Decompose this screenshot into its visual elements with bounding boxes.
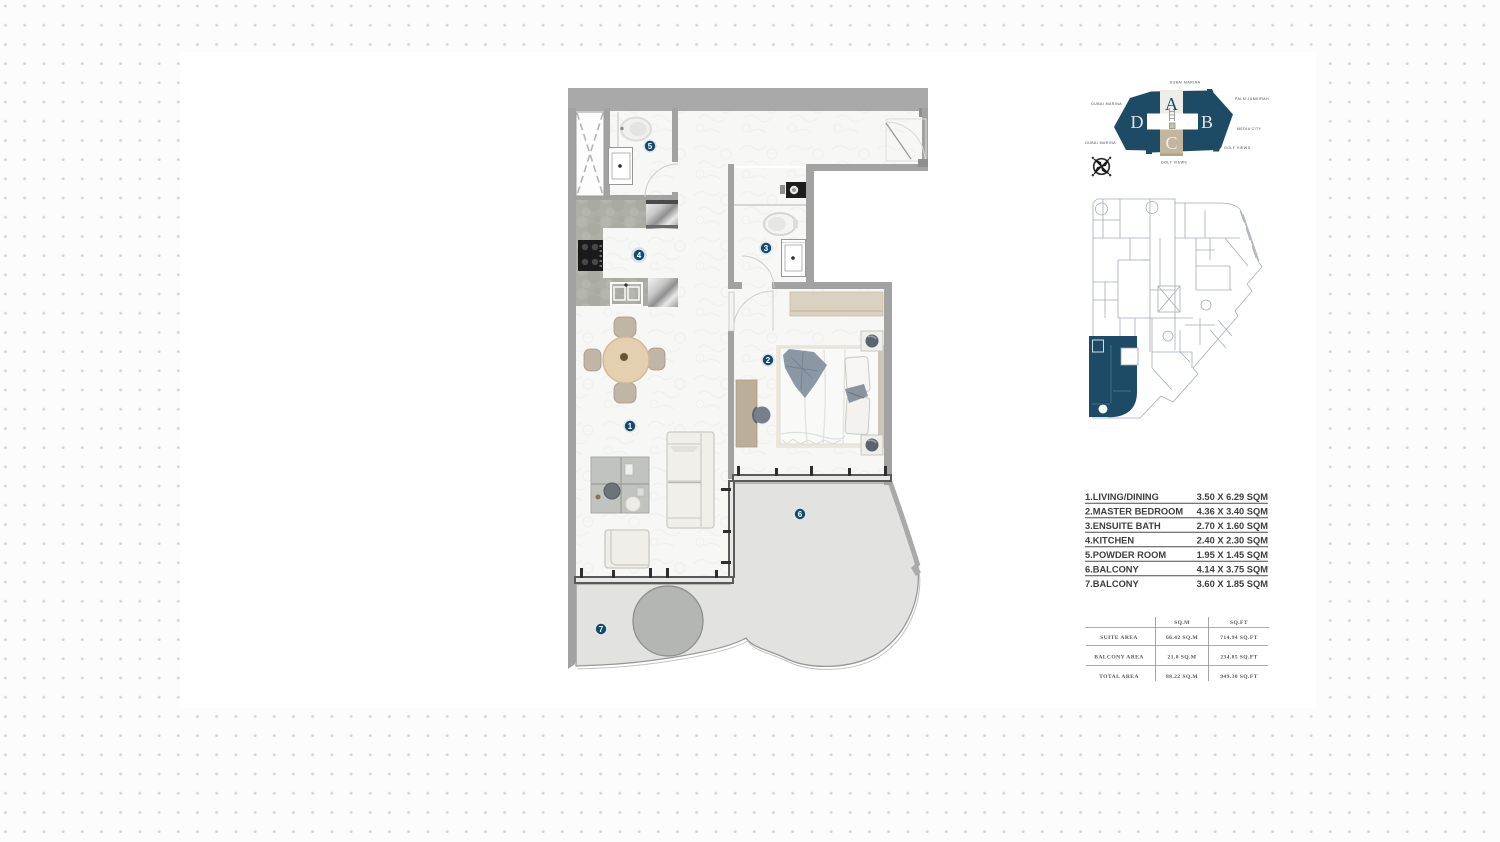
svg-text:3: 3	[764, 244, 769, 253]
svg-text:714.94 SQ.FT: 714.94 SQ.FT	[1220, 635, 1258, 641]
svg-text:4.14 X 3.75 SQM: 4.14 X 3.75 SQM	[1197, 565, 1269, 575]
svg-text:6: 6	[798, 510, 803, 519]
svg-text:PALM JUMEIRAH: PALM JUMEIRAH	[1235, 97, 1269, 101]
svg-text:88.22 SQ.M: 88.22 SQ.M	[1166, 674, 1198, 680]
svg-text:TOTAL AREA: TOTAL AREA	[1099, 674, 1139, 680]
svg-text:BALCONY AREA: BALCONY AREA	[1094, 655, 1144, 661]
svg-text:6.BALCONY: 6.BALCONY	[1085, 565, 1140, 575]
svg-text:D: D	[1131, 112, 1144, 132]
svg-text:SQ.FT: SQ.FT	[1230, 620, 1248, 626]
svg-text:2.70 X 1.60 SQM: 2.70 X 1.60 SQM	[1197, 521, 1269, 531]
svg-text:B: B	[1201, 112, 1213, 132]
svg-text:4.KITCHEN: 4.KITCHEN	[1085, 536, 1134, 546]
svg-text:4.36 X 3.40 SQM: 4.36 X 3.40 SQM	[1197, 507, 1269, 517]
svg-text:5.POWDER ROOM: 5.POWDER ROOM	[1085, 550, 1166, 560]
svg-text:4: 4	[637, 251, 642, 260]
svg-text:DUBAI MARINA: DUBAI MARINA	[1170, 81, 1201, 85]
svg-text:GOLF VIEWS: GOLF VIEWS	[1224, 146, 1251, 150]
svg-text:1.LIVING/DINING: 1.LIVING/DINING	[1085, 492, 1159, 502]
svg-text:2.MASTER BEDROOM: 2.MASTER BEDROOM	[1085, 507, 1183, 517]
svg-text:2: 2	[766, 356, 771, 365]
svg-text:2.40 X 2.30 SQM: 2.40 X 2.30 SQM	[1197, 536, 1269, 546]
svg-text:5: 5	[648, 142, 653, 151]
svg-text:234.85 SQ.FT: 234.85 SQ.FT	[1220, 655, 1258, 661]
svg-text:DUBAI MARINA: DUBAI MARINA	[1085, 141, 1116, 145]
svg-text:21.8 SQ.M: 21.8 SQ.M	[1168, 655, 1197, 661]
svg-text:7.BALCONY: 7.BALCONY	[1085, 579, 1140, 589]
svg-text:1: 1	[628, 422, 633, 431]
svg-text:SQ.M: SQ.M	[1174, 620, 1190, 626]
svg-text:SUITE AREA: SUITE AREA	[1100, 635, 1138, 641]
svg-text:C: C	[1165, 133, 1177, 153]
svg-text:7: 7	[599, 625, 604, 634]
svg-text:66.42 SQ.M: 66.42 SQ.M	[1166, 635, 1198, 641]
svg-text:949.30 SQ.FT: 949.30 SQ.FT	[1220, 674, 1258, 680]
svg-text:3.50 X 6.29 SQM: 3.50 X 6.29 SQM	[1197, 492, 1269, 502]
svg-text:A: A	[1165, 94, 1178, 114]
svg-text:MEDIA CITY: MEDIA CITY	[1237, 127, 1262, 131]
svg-text:3.ENSUITE BATH: 3.ENSUITE BATH	[1085, 521, 1161, 531]
svg-text:DUBAI MARINA: DUBAI MARINA	[1091, 102, 1122, 106]
svg-text:1.95 X 1.45 SQM: 1.95 X 1.45 SQM	[1197, 550, 1269, 560]
svg-text:3.60 X 1.85 SQM: 3.60 X 1.85 SQM	[1197, 579, 1269, 589]
svg-text:GOLF VIEWS: GOLF VIEWS	[1161, 161, 1188, 165]
